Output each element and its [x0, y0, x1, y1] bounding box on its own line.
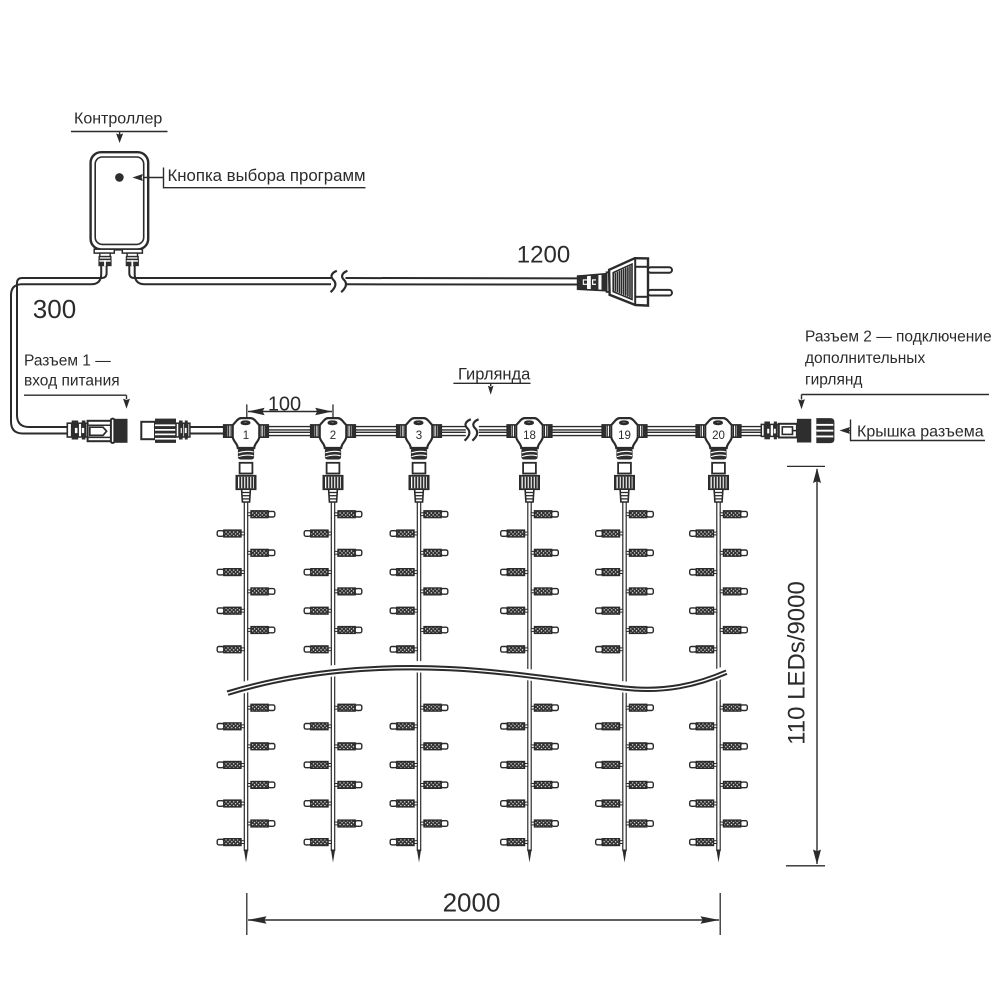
- svg-text:2000: 2000: [443, 888, 501, 918]
- svg-text:100: 100: [268, 393, 301, 415]
- svg-text:20: 20: [712, 430, 725, 442]
- svg-text:19: 19: [618, 430, 631, 442]
- svg-text:110 LEDs/9000: 110 LEDs/9000: [784, 581, 811, 745]
- svg-text:Контроллер: Контроллер: [74, 111, 162, 128]
- svg-text:Гирлянда: Гирлянда: [458, 366, 531, 384]
- svg-text:18: 18: [523, 430, 536, 442]
- svg-text:Разъем 2 — подключение: Разъем 2 — подключение: [805, 329, 992, 346]
- svg-text:1: 1: [243, 430, 249, 442]
- svg-text:вход питания: вход питания: [24, 372, 120, 389]
- svg-text:Разъем 1 —: Разъем 1 —: [24, 352, 111, 369]
- svg-text:3: 3: [416, 430, 422, 442]
- svg-text:Кнопка выбора программ: Кнопка выбора программ: [168, 166, 366, 185]
- svg-text:Крышка разъема: Крышка разъема: [857, 424, 984, 441]
- svg-text:дополнительных: дополнительных: [805, 350, 925, 367]
- svg-text:1200: 1200: [517, 242, 570, 269]
- svg-text:гирлянд: гирлянд: [805, 372, 862, 389]
- svg-text:300: 300: [33, 294, 76, 324]
- svg-text:2: 2: [330, 430, 336, 442]
